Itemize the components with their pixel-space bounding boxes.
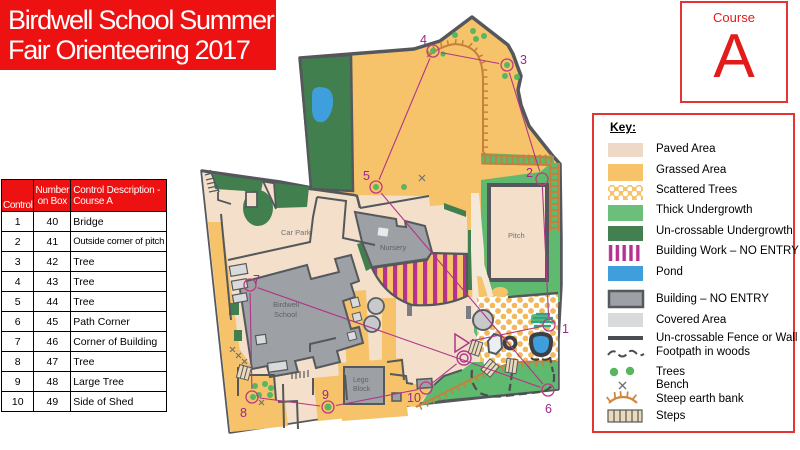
svg-text:5: 5 <box>363 169 370 183</box>
svg-text:7: 7 <box>253 273 260 287</box>
svg-text:2: 2 <box>526 166 533 180</box>
svg-text:Car Park: Car Park <box>281 228 311 237</box>
svg-text:3: 3 <box>520 53 527 67</box>
svg-text:1: 1 <box>562 322 569 336</box>
svg-text:Block: Block <box>353 386 371 393</box>
svg-text:School: School <box>274 310 297 319</box>
svg-text:Lego: Lego <box>353 377 369 384</box>
svg-text:6: 6 <box>545 402 552 416</box>
svg-text:Pitch: Pitch <box>508 231 525 240</box>
svg-text:9: 9 <box>322 388 329 402</box>
svg-text:4: 4 <box>420 33 427 47</box>
svg-text:10: 10 <box>407 391 421 405</box>
svg-text:8: 8 <box>240 406 247 420</box>
svg-text:Nursery: Nursery <box>380 243 407 252</box>
